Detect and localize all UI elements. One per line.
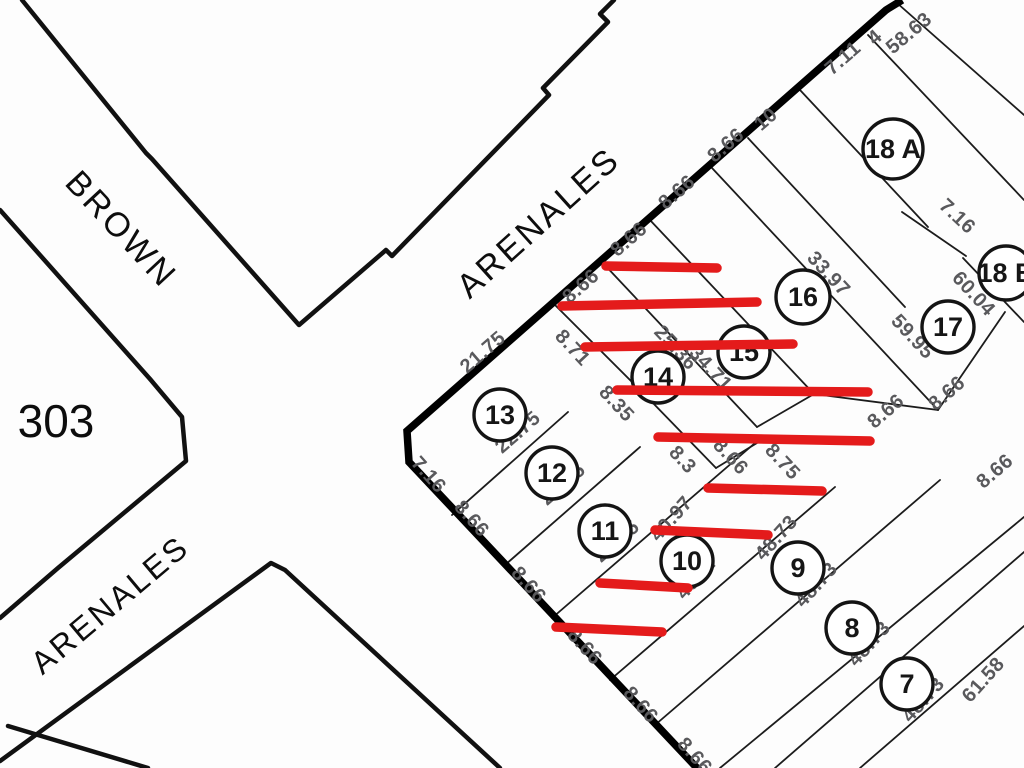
lot-marker-8: 8	[826, 602, 878, 654]
street-label-arenales-bottom: ARENALES	[24, 528, 196, 681]
red-annotation-line	[617, 390, 868, 392]
lot-marker-9: 9	[772, 542, 824, 594]
block-number-label: 303	[18, 395, 95, 447]
lot-number: 7	[899, 669, 914, 699]
lot-marker-13: 13	[474, 389, 526, 441]
dimension-label: 7.11	[821, 37, 865, 80]
dimension-label: 8.66	[972, 450, 1017, 493]
lot-marker-11: 11	[579, 505, 631, 557]
plat-drawing: 21.758.668.668.668.66107.11458.637.168.6…	[0, 0, 1024, 768]
lot-number: 11	[591, 516, 620, 546]
lot-number: 8	[844, 613, 859, 643]
lot-marker-15: 15	[718, 326, 770, 378]
dimension-label: 7.16	[935, 195, 980, 239]
red-annotation-line	[562, 302, 757, 306]
red-annotation-line	[655, 530, 768, 535]
red-annotation-line	[658, 437, 870, 441]
lot-number: 17	[933, 312, 963, 342]
lot-marker-18b: 18 B	[977, 246, 1024, 300]
red-annotation-line	[600, 583, 688, 588]
lot-number: 9	[790, 553, 805, 583]
lot-marker-18a: 18 A	[863, 119, 923, 179]
lot-number: 12	[537, 458, 567, 488]
dimension-label: 4	[863, 25, 886, 49]
dimension-label: 8.66	[673, 733, 717, 768]
lot-marker-17: 17	[922, 301, 974, 353]
lot-number: 18 B	[977, 258, 1024, 288]
lot-marker-7: 7	[881, 658, 933, 710]
block-outline-south	[0, 563, 500, 768]
red-annotation-line	[556, 627, 662, 632]
red-annotation-line	[606, 266, 717, 268]
lot-marker-10: 10	[661, 535, 713, 587]
cadastral-map: 21.758.668.668.668.66107.11458.637.168.6…	[0, 0, 1024, 768]
lot-number: 13	[485, 400, 515, 430]
street-label-brown: BROWN	[58, 163, 185, 295]
block-outline-southwest-corner	[8, 726, 148, 768]
dimension-label: 7.16	[407, 452, 451, 497]
street-block-outlines	[0, 0, 614, 768]
lot-number: 10	[672, 546, 702, 576]
lot-number: 18 A	[865, 134, 921, 164]
lot-marker-16: 16	[776, 270, 830, 324]
dimension-label: 8.75	[760, 439, 804, 484]
dimension-label: 8.66	[863, 390, 908, 433]
red-annotation-line	[708, 488, 822, 491]
lot-number: 16	[788, 282, 818, 312]
dimension-label: 58.63	[882, 8, 936, 59]
block-outline-northwest	[22, 0, 614, 325]
dimension-label: 8.66	[450, 496, 494, 541]
red-annotation-line	[585, 344, 793, 347]
lot-marker-12: 12	[526, 447, 578, 499]
